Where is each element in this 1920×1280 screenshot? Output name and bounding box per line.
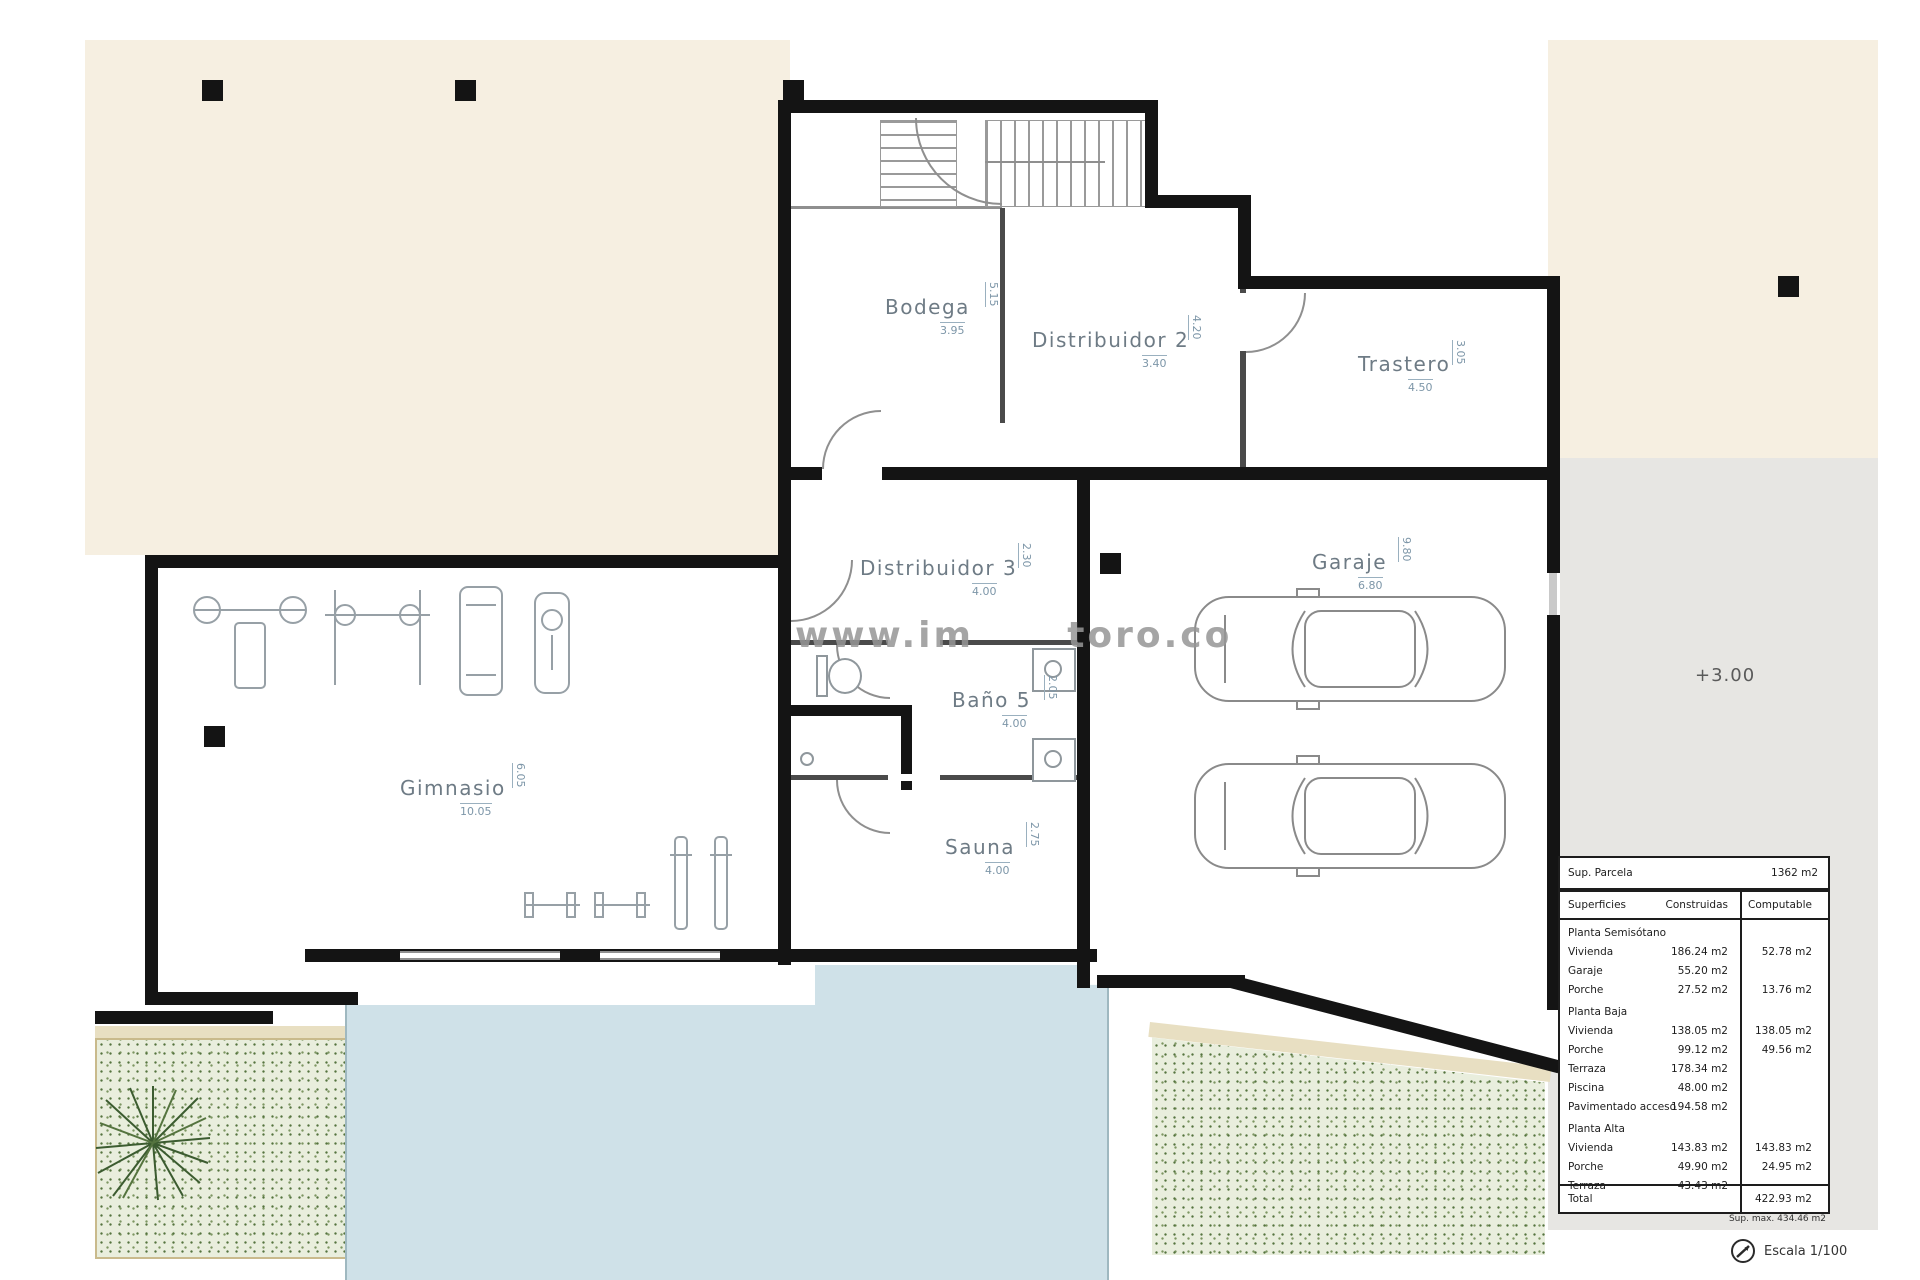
table-header: Superficies Construidas Computable <box>1560 892 1828 920</box>
header-construidas: Construidas <box>1656 899 1738 911</box>
garage-door-opening <box>1549 573 1557 615</box>
table-row: Porche 49.90 m2 24.95 m2 <box>1560 1157 1828 1176</box>
wall-garage-bottom <box>1097 975 1245 988</box>
row-construidas: 48.00 m2 <box>1656 1082 1738 1094</box>
watermark: www.im toro.co <box>795 615 1232 656</box>
car-2 <box>1185 752 1530 882</box>
table-superficies: Superficies Construidas Computable Plant… <box>1558 890 1830 1214</box>
pool <box>345 962 1109 1280</box>
room-dim-w-bano-5: 4.00 <box>1002 715 1027 730</box>
table-row: Vivienda 138.05 m2 138.05 m2 <box>1560 1021 1828 1040</box>
wall-left-main <box>778 100 791 965</box>
row-label: Porche <box>1560 1044 1656 1056</box>
sink-2-basin <box>1044 750 1062 768</box>
column-marker-2 <box>455 80 476 101</box>
row-computable: 138.05 m2 <box>1738 1025 1822 1037</box>
sliding-door-2 <box>600 951 720 960</box>
terrain-cream-topleft <box>85 40 790 555</box>
column-marker-5 <box>1100 553 1121 574</box>
shower-drain <box>800 752 814 766</box>
wall-garage-left <box>1077 480 1090 988</box>
row-label: Vivienda <box>1560 1142 1656 1154</box>
room-label-sauna: Sauna <box>945 835 1015 859</box>
north-compass-icon <box>1730 1238 1756 1264</box>
wall-top <box>778 100 1158 113</box>
parcela-label: Sup. Parcela <box>1560 867 1633 879</box>
wall-gym-left <box>145 555 158 1005</box>
row-computable: 143.83 m2 <box>1738 1142 1822 1154</box>
row-label: Garaje <box>1560 965 1656 977</box>
room-dim-w-distribuidor-2: 3.40 <box>1142 355 1167 370</box>
column-marker-3 <box>783 80 804 101</box>
wall-trastero-top <box>1238 276 1560 289</box>
door-gap-sauna <box>888 774 940 781</box>
toilet-tank <box>816 655 828 697</box>
floor-middle-column <box>784 480 1084 965</box>
table-row: Pavimentado acceso 194.58 m2 <box>1560 1097 1828 1116</box>
row-label: Terraza <box>1560 1063 1656 1075</box>
section-title-baja: Planta Baja <box>1560 999 1828 1021</box>
header-computable: Computable <box>1738 899 1822 911</box>
row-construidas: 55.20 m2 <box>1656 965 1738 977</box>
total-value: 422.93 m2 <box>1738 1193 1822 1205</box>
wall-gym-bottom <box>145 992 358 1005</box>
room-label-gimnasio: Gimnasio <box>400 776 506 800</box>
row-label: Porche <box>1560 984 1656 996</box>
table-row: Garaje 55.20 m2 <box>1560 961 1828 980</box>
section-title-semisotano: Planta Semisótano <box>1560 920 1828 942</box>
row-construidas: 143.83 m2 <box>1656 1142 1738 1154</box>
row-construidas: 99.12 m2 <box>1656 1044 1738 1056</box>
room-label-bodega: Bodega <box>885 295 970 319</box>
table-row: Porche 27.52 m2 13.76 m2 <box>1560 980 1828 999</box>
room-dim-h-distribuidor-3: 2.30 <box>1018 543 1033 568</box>
row-construidas: 178.34 m2 <box>1656 1063 1738 1075</box>
room-label-distribuidor-2: Distribuidor 2 <box>1032 328 1189 352</box>
stairs-flight-right <box>985 120 1157 207</box>
total-label: Total <box>1560 1193 1738 1205</box>
wall-mid-horizontal <box>778 467 1560 480</box>
row-label: Pavimentado acceso <box>1560 1101 1656 1113</box>
gym-dumbbells-icons <box>520 835 760 935</box>
table-row: Vivienda 143.83 m2 143.83 m2 <box>1560 1138 1828 1157</box>
room-dim-w-distribuidor-3: 4.00 <box>972 583 997 598</box>
row-construidas: 138.05 m2 <box>1656 1025 1738 1037</box>
wall-bodega-distr2 <box>1000 208 1005 423</box>
row-label: Vivienda <box>1560 946 1656 958</box>
room-dim-h-sauna: 2.75 <box>1026 822 1041 847</box>
row-construidas: 194.58 m2 <box>1656 1101 1738 1113</box>
car-1 <box>1185 585 1530 715</box>
gym-equipment-icons <box>185 575 705 710</box>
sliding-door-1 <box>400 951 560 960</box>
room-dim-h-garaje: 9.80 <box>1398 537 1413 562</box>
room-dim-h-bano-5: 2.05 <box>1044 675 1059 700</box>
room-label-distribuidor-3: Distribuidor 3 <box>860 556 1017 580</box>
wall-terrace-stub <box>95 1011 273 1024</box>
section-title-alta: Planta Alta <box>1560 1116 1828 1138</box>
row-construidas: 27.52 m2 <box>1656 984 1738 996</box>
header-superficies: Superficies <box>1560 899 1656 911</box>
column-marker-4 <box>204 726 225 747</box>
wall-shower-h <box>784 705 912 716</box>
room-dim-h-gimnasio: 6.05 <box>512 763 527 788</box>
table-footnote: Sup. max. 434.46 m2 <box>1640 1214 1826 1224</box>
room-dim-w-trastero: 4.50 <box>1408 379 1433 394</box>
wall-stair-right <box>1145 100 1158 208</box>
toilet-bowl <box>828 658 862 694</box>
room-dim-h-trastero: 3.05 <box>1452 340 1467 365</box>
row-computable: 13.76 m2 <box>1738 984 1822 996</box>
row-computable: 52.78 m2 <box>1738 946 1822 958</box>
row-construidas: 49.90 m2 <box>1656 1161 1738 1173</box>
tree-icon <box>88 1078 218 1208</box>
scale-indicator: Escala 1/100 <box>1730 1238 1847 1264</box>
row-label: Vivienda <box>1560 1025 1656 1037</box>
scale-label: Escala 1/100 <box>1764 1244 1847 1259</box>
row-label: Porche <box>1560 1161 1656 1173</box>
parcela-value: 1362 m2 <box>1771 867 1828 879</box>
room-dim-w-gimnasio: 10.05 <box>460 803 492 818</box>
table-total-row: Total 422.93 m2 <box>1560 1184 1828 1212</box>
room-dim-w-bodega: 3.95 <box>940 322 965 337</box>
table-row: Terraza 178.34 m2 <box>1560 1059 1828 1078</box>
column-marker-6 <box>1778 276 1799 297</box>
row-computable: 49.56 m2 <box>1738 1044 1822 1056</box>
table-parcela: Sup. Parcela 1362 m2 <box>1558 856 1830 890</box>
table-row: Piscina 48.00 m2 <box>1560 1078 1828 1097</box>
wall-step-h <box>1145 195 1251 208</box>
room-label-garaje: Garaje <box>1312 550 1387 574</box>
wall-gym-top <box>145 555 791 568</box>
table-row: Vivienda 186.24 m2 52.78 m2 <box>1560 942 1828 961</box>
level-marker: +3.00 <box>1695 665 1755 686</box>
room-dim-h-bodega: 5.15 <box>985 282 1000 307</box>
floorplan-canvas: Bodega 3.95 5.15 Distribuidor 2 3.40 4.2… <box>0 0 1920 1280</box>
row-computable: 24.95 m2 <box>1738 1161 1822 1173</box>
column-marker-1 <box>202 80 223 101</box>
room-label-trastero: Trastero <box>1358 352 1450 376</box>
room-dim-h-distribuidor-2: 4.20 <box>1188 315 1203 340</box>
table-row: Porche 99.12 m2 49.56 m2 <box>1560 1040 1828 1059</box>
row-construidas: 186.24 m2 <box>1656 946 1738 958</box>
room-label-bano-5: Baño 5 <box>952 688 1031 712</box>
terrain-cream-topright <box>1548 40 1878 458</box>
wall-right-upper <box>1547 276 1560 573</box>
wall-step-v <box>1238 195 1251 289</box>
row-label: Piscina <box>1560 1082 1656 1094</box>
room-dim-w-garaje: 6.80 <box>1358 577 1383 592</box>
table-column-divider <box>1740 892 1742 1212</box>
stairs-rail <box>985 161 1105 163</box>
room-dim-w-sauna: 4.00 <box>985 862 1010 877</box>
